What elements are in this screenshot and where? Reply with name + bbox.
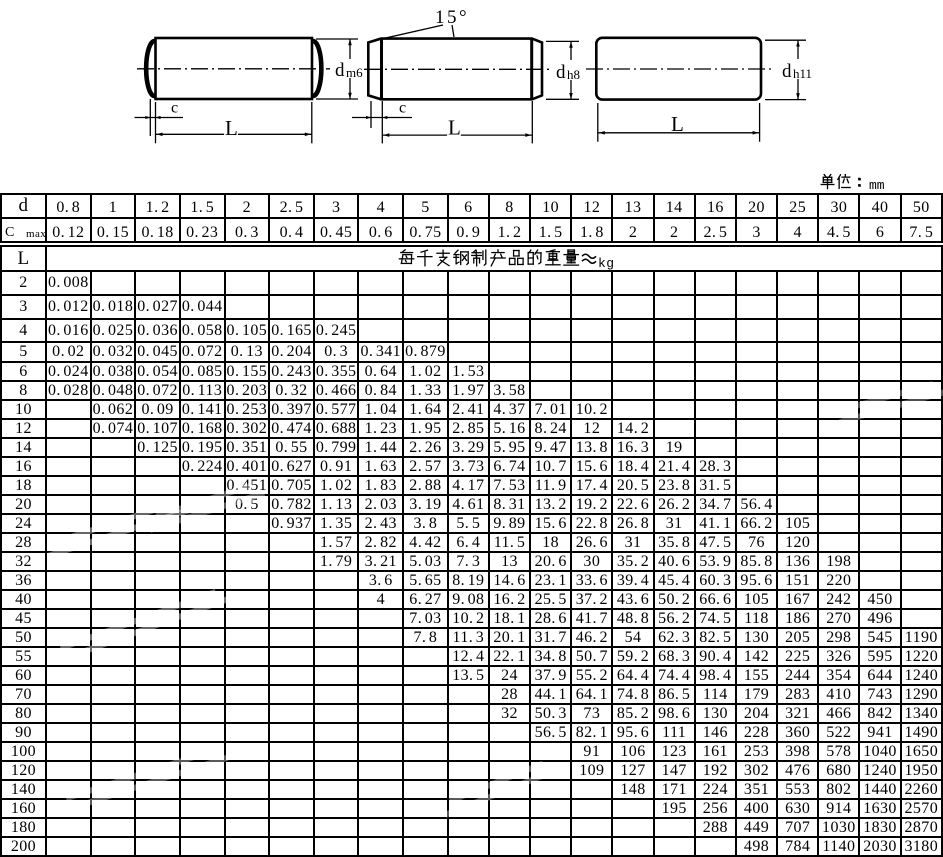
svg-text:d: d bbox=[335, 60, 345, 81]
svg-text:m6: m6 bbox=[346, 65, 363, 80]
svg-text:d: d bbox=[556, 62, 566, 83]
svg-text:15°: 15° bbox=[435, 7, 469, 28]
svg-text:L: L bbox=[225, 116, 238, 140]
svg-text:L: L bbox=[448, 116, 461, 140]
svg-text:d: d bbox=[782, 61, 792, 82]
svg-text:L: L bbox=[671, 112, 684, 136]
svg-text:c: c bbox=[171, 100, 178, 117]
svg-text:mm: mm bbox=[869, 178, 885, 193]
svg-text:h11: h11 bbox=[793, 66, 812, 81]
svg-text:h8: h8 bbox=[567, 67, 580, 82]
svg-text:c: c bbox=[399, 100, 406, 117]
svg-text:kg: kg bbox=[598, 256, 614, 270]
